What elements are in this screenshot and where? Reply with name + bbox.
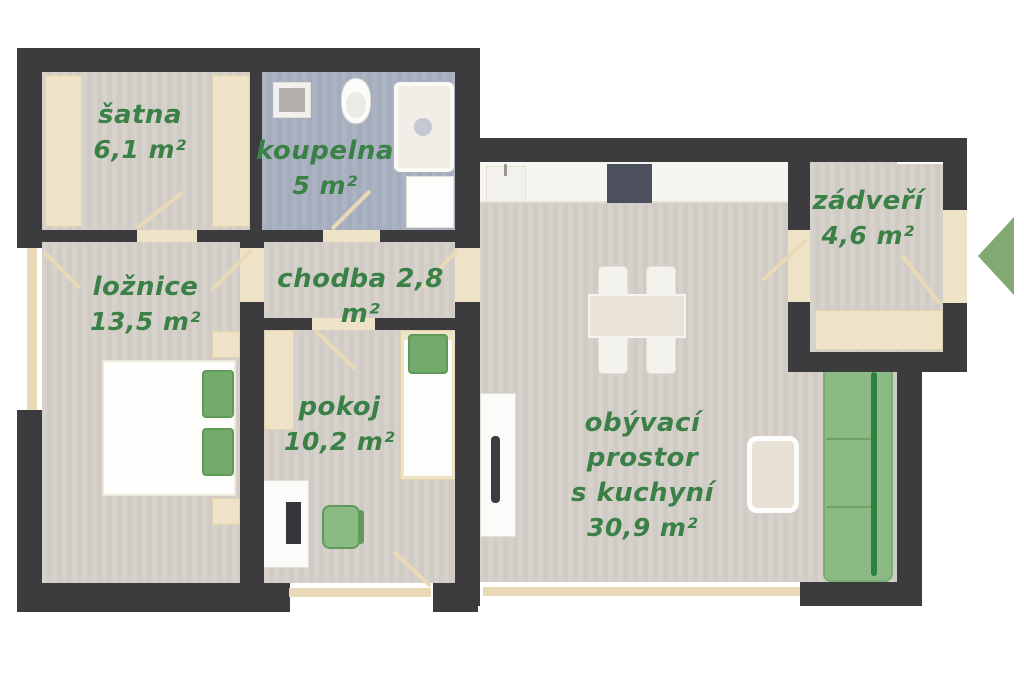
tv <box>491 436 500 503</box>
floor-plan: šatna 6,1 m² koupelna 5 m² ložnice 13,5 … <box>0 0 1024 683</box>
room-name2: s kuchyní <box>525 476 760 511</box>
room-label-zadveri: zádveří 4,6 m² <box>798 184 938 253</box>
window-obyvaci <box>483 587 800 596</box>
room-name: šatna <box>55 98 225 133</box>
door-threshold-entrance <box>943 210 967 303</box>
office-chair <box>322 505 360 549</box>
room-area: 5 m² <box>250 169 400 203</box>
sofa-seam <box>826 438 871 440</box>
room-name-area: chodba 2,8 m² <box>258 262 463 332</box>
bed-pillow <box>202 370 234 418</box>
room-area: 6,1 m² <box>55 133 225 167</box>
room-name: pokoj <box>252 390 427 425</box>
room-name: zádveří <box>798 184 938 219</box>
entrance-arrow-icon <box>978 217 1014 295</box>
door-threshold-satna <box>137 230 197 242</box>
room-area: 13,5 m² <box>58 305 233 339</box>
room-label-koupelna: koupelna 5 m² <box>250 134 400 203</box>
bed-pillow <box>408 334 448 374</box>
sofa-backrest <box>871 372 877 576</box>
room-label-pokoj: pokoj 10,2 m² <box>252 390 427 459</box>
office-chair-back <box>358 510 364 544</box>
entry-bench <box>815 310 943 350</box>
room-label-loznice: ložnice 13,5 m² <box>58 270 233 339</box>
room-name: obývací prostor <box>525 406 760 476</box>
sofa <box>823 366 893 582</box>
wall <box>788 352 967 372</box>
room-area: 10,2 m² <box>252 425 427 459</box>
toilet-seat <box>346 92 366 118</box>
dining-table <box>588 294 686 338</box>
wall <box>17 48 480 72</box>
wall <box>455 48 480 242</box>
room-name: ložnice <box>58 270 233 305</box>
room-area: 30,9 m² <box>525 511 760 545</box>
room-label-obyvaci: obývací prostor s kuchyní 30,9 m² <box>525 406 760 545</box>
bed-pillow <box>202 428 234 476</box>
window-loznice-frame <box>27 248 37 410</box>
cooktop <box>607 164 652 203</box>
kitchen-sink-faucet <box>504 164 507 176</box>
desk-monitor <box>286 502 301 544</box>
sofa-seam <box>826 506 871 508</box>
shower-drain <box>414 118 432 136</box>
window-pokoj <box>289 588 431 597</box>
room-name: koupelna <box>250 134 400 169</box>
wall <box>897 367 922 606</box>
wall <box>455 138 967 162</box>
washing-machine <box>406 176 454 228</box>
door-threshold-koupelna <box>323 230 380 242</box>
wall <box>943 303 967 353</box>
room-area: 4,6 m² <box>798 219 938 253</box>
room-label-chodba: chodba 2,8 m² <box>258 262 463 332</box>
room-label-satna: šatna 6,1 m² <box>55 98 225 167</box>
nightstand <box>212 498 240 525</box>
bathroom-sink-basin <box>279 88 305 112</box>
